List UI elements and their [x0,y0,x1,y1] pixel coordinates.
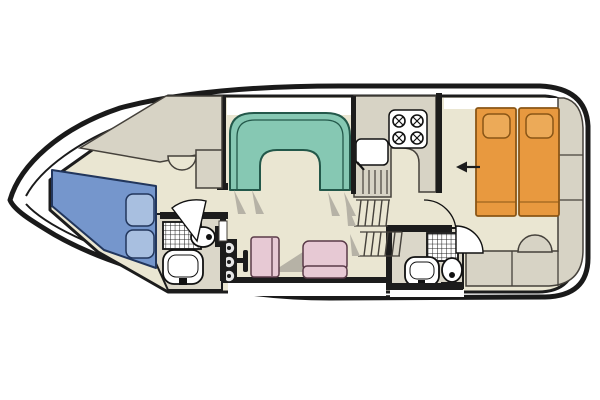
boat-floorplan-canvas [0,0,600,400]
helm-instrument-center [227,274,231,278]
galley-sink-bowl [356,139,388,165]
forward-washbasin [163,250,203,285]
bulkhead-door-panel [219,221,227,241]
bench-seat-backrest [303,266,347,278]
aft-toilet-bowl [442,258,462,282]
galley-stove [389,110,427,148]
helm-seat-cushion [251,237,279,277]
aft-toilet [441,258,463,287]
helm-seat [251,237,279,277]
aft-washbasin [405,257,439,286]
throttle-lever-handle [243,250,248,272]
aft-bathroom-wall-bottom [386,283,463,290]
aft-bathroom-wall-top [386,225,452,232]
helm-instrument-center [227,260,231,264]
forward-washbasin-tap [179,278,187,285]
side-deck-bottom-aft [390,290,464,297]
side-deck-bottom [228,283,386,296]
bow-wardrobe [196,150,222,188]
bow-pillow-top [126,194,154,226]
bow-pillow-bottom [126,230,154,258]
bench-seat [303,241,347,278]
galley-wall-aft [436,93,442,193]
forward-toilet-drain [206,234,212,240]
helm-instrument-center [227,246,231,250]
galley-wall-forward [351,96,356,194]
aft-pillow-right [526,114,553,138]
aft-toilet-drain [449,272,455,278]
aft-pillow-left [483,114,510,138]
boat-floorplan [0,0,600,400]
